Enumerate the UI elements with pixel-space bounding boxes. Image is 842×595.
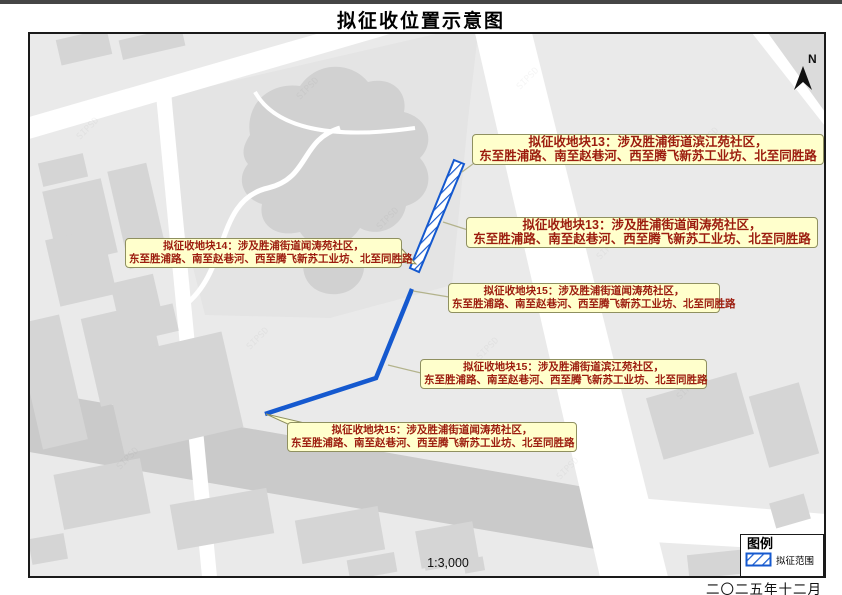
callout-parcel13-binjiangyuan: 拟征收地块13：涉及胜浦街道滨江苑社区， 东至胜浦路、南至赵巷河、西至腾飞新苏工… xyxy=(472,134,824,165)
map-scale: 1:3,000 xyxy=(395,556,501,570)
callout-line1: 拟征收地块13：涉及胜浦街道滨江苑社区， xyxy=(476,136,820,150)
callout-line1: 拟征收地块15：涉及胜浦街道闻涛苑社区， xyxy=(291,424,573,437)
callout-parcel14-wentaoyuan: 拟征收地块14：涉及胜浦街道闻涛苑社区， 东至胜浦路、南至赵巷河、西至腾飞新苏工… xyxy=(125,238,402,268)
svg-text:N: N xyxy=(808,52,817,66)
page: 拟征收位置示意图 xyxy=(0,0,842,595)
legend-item-label: 拟征范围 xyxy=(776,553,814,567)
callout-line2: 东至胜浦路、南至赵巷河、西至腾飞新苏工业坊、北至同胜路 xyxy=(129,253,398,266)
legend: 图例 拟征范围 xyxy=(740,534,824,577)
callout-line1: 拟征收地块15：涉及胜浦街道闻涛苑社区， xyxy=(452,285,716,298)
callout-line1: 拟征收地块13：涉及胜浦街道闻涛苑社区， xyxy=(470,219,814,233)
callout-line1: 拟征收地块15：涉及胜浦街道滨江苑社区， xyxy=(424,361,703,374)
date-label: 二〇二五年十二月 xyxy=(694,578,822,595)
callout-parcel15-wentaoyuan-mid: 拟征收地块15：涉及胜浦街道闻涛苑社区， 东至胜浦路、南至赵巷河、西至腾飞新苏工… xyxy=(448,283,720,313)
callout-parcel15-wentaoyuan-bottom: 拟征收地块15：涉及胜浦街道闻涛苑社区， 东至胜浦路、南至赵巷河、西至腾飞新苏工… xyxy=(287,422,577,452)
legend-item: 拟征范围 xyxy=(745,552,823,567)
callout-line2: 东至胜浦路、南至赵巷河、西至腾飞新苏工业坊、北至同胜路 xyxy=(291,437,573,450)
acquisition-swatch-icon xyxy=(745,552,772,567)
legend-title: 图例 xyxy=(747,536,823,551)
callout-line2: 东至胜浦路、南至赵巷河、西至腾飞新苏工业坊、北至同胜路 xyxy=(476,150,820,164)
callout-line1: 拟征收地块14：涉及胜浦街道闻涛苑社区， xyxy=(129,240,398,253)
callout-parcel13-wentaoyuan: 拟征收地块13：涉及胜浦街道闻涛苑社区， 东至胜浦路、南至赵巷河、西至腾飞新苏工… xyxy=(466,217,818,248)
callout-parcel15-binjiangyuan: 拟征收地块15：涉及胜浦街道滨江苑社区， 东至胜浦路、南至赵巷河、西至腾飞新苏工… xyxy=(420,359,707,389)
callout-line2: 东至胜浦路、南至赵巷河、西至腾飞新苏工业坊、北至同胜路 xyxy=(470,233,814,247)
callout-line2: 东至胜浦路、南至赵巷河、西至腾飞新苏工业坊、北至同胜路 xyxy=(424,374,703,387)
callout-line2: 东至胜浦路、南至赵巷河、西至腾飞新苏工业坊、北至同胜路 xyxy=(452,298,716,311)
